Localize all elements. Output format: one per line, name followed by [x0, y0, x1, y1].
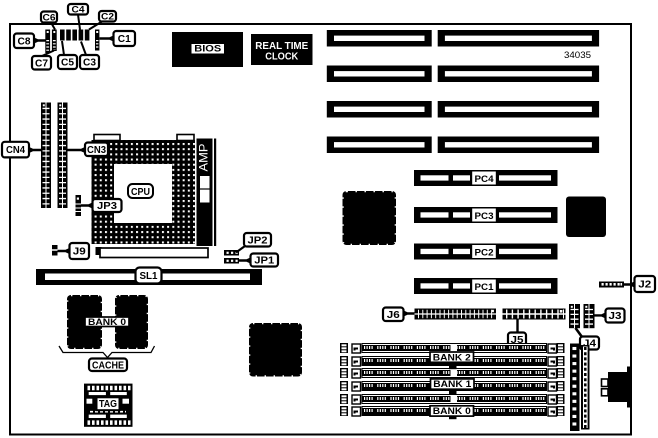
svg-text:C7: C7 [35, 58, 48, 69]
svg-text:CPU: CPU [131, 186, 150, 198]
svg-text:C1: C1 [118, 34, 131, 45]
svg-text:AMP: AMP [199, 143, 211, 171]
svg-text:J9: J9 [73, 247, 87, 258]
svg-text:C5: C5 [61, 58, 74, 69]
svg-text:J2: J2 [638, 280, 652, 291]
svg-text:CN3: CN3 [87, 145, 106, 156]
svg-text:JP2: JP2 [248, 235, 268, 246]
svg-text:C4: C4 [72, 5, 86, 16]
svg-text:BANK 0: BANK 0 [433, 406, 471, 417]
svg-text:CLOCK: CLOCK [265, 51, 298, 63]
svg-text:C8: C8 [18, 36, 31, 47]
svg-text:34035: 34035 [564, 50, 591, 60]
svg-text:C2: C2 [101, 12, 114, 23]
svg-text:BIOS: BIOS [194, 44, 221, 54]
svg-text:CACHE: CACHE [92, 360, 124, 371]
svg-text:PC1: PC1 [475, 282, 495, 293]
svg-text:BANK 0: BANK 0 [88, 317, 126, 328]
svg-text:TAG: TAG [99, 399, 117, 410]
svg-text:BANK 1: BANK 1 [433, 379, 472, 390]
svg-text:JP3: JP3 [97, 201, 117, 212]
svg-text:C6: C6 [43, 12, 56, 23]
svg-text:SL1: SL1 [140, 271, 158, 282]
svg-text:JP1: JP1 [254, 256, 274, 267]
svg-text:BANK 2: BANK 2 [433, 352, 471, 363]
svg-text:PC3: PC3 [475, 211, 494, 222]
svg-text:J6: J6 [387, 310, 401, 321]
svg-text:PC2: PC2 [475, 248, 494, 259]
svg-text:C3: C3 [83, 58, 96, 69]
svg-text:PC4: PC4 [475, 174, 495, 185]
svg-text:CN4: CN4 [6, 145, 25, 156]
svg-text:J3: J3 [609, 311, 623, 322]
